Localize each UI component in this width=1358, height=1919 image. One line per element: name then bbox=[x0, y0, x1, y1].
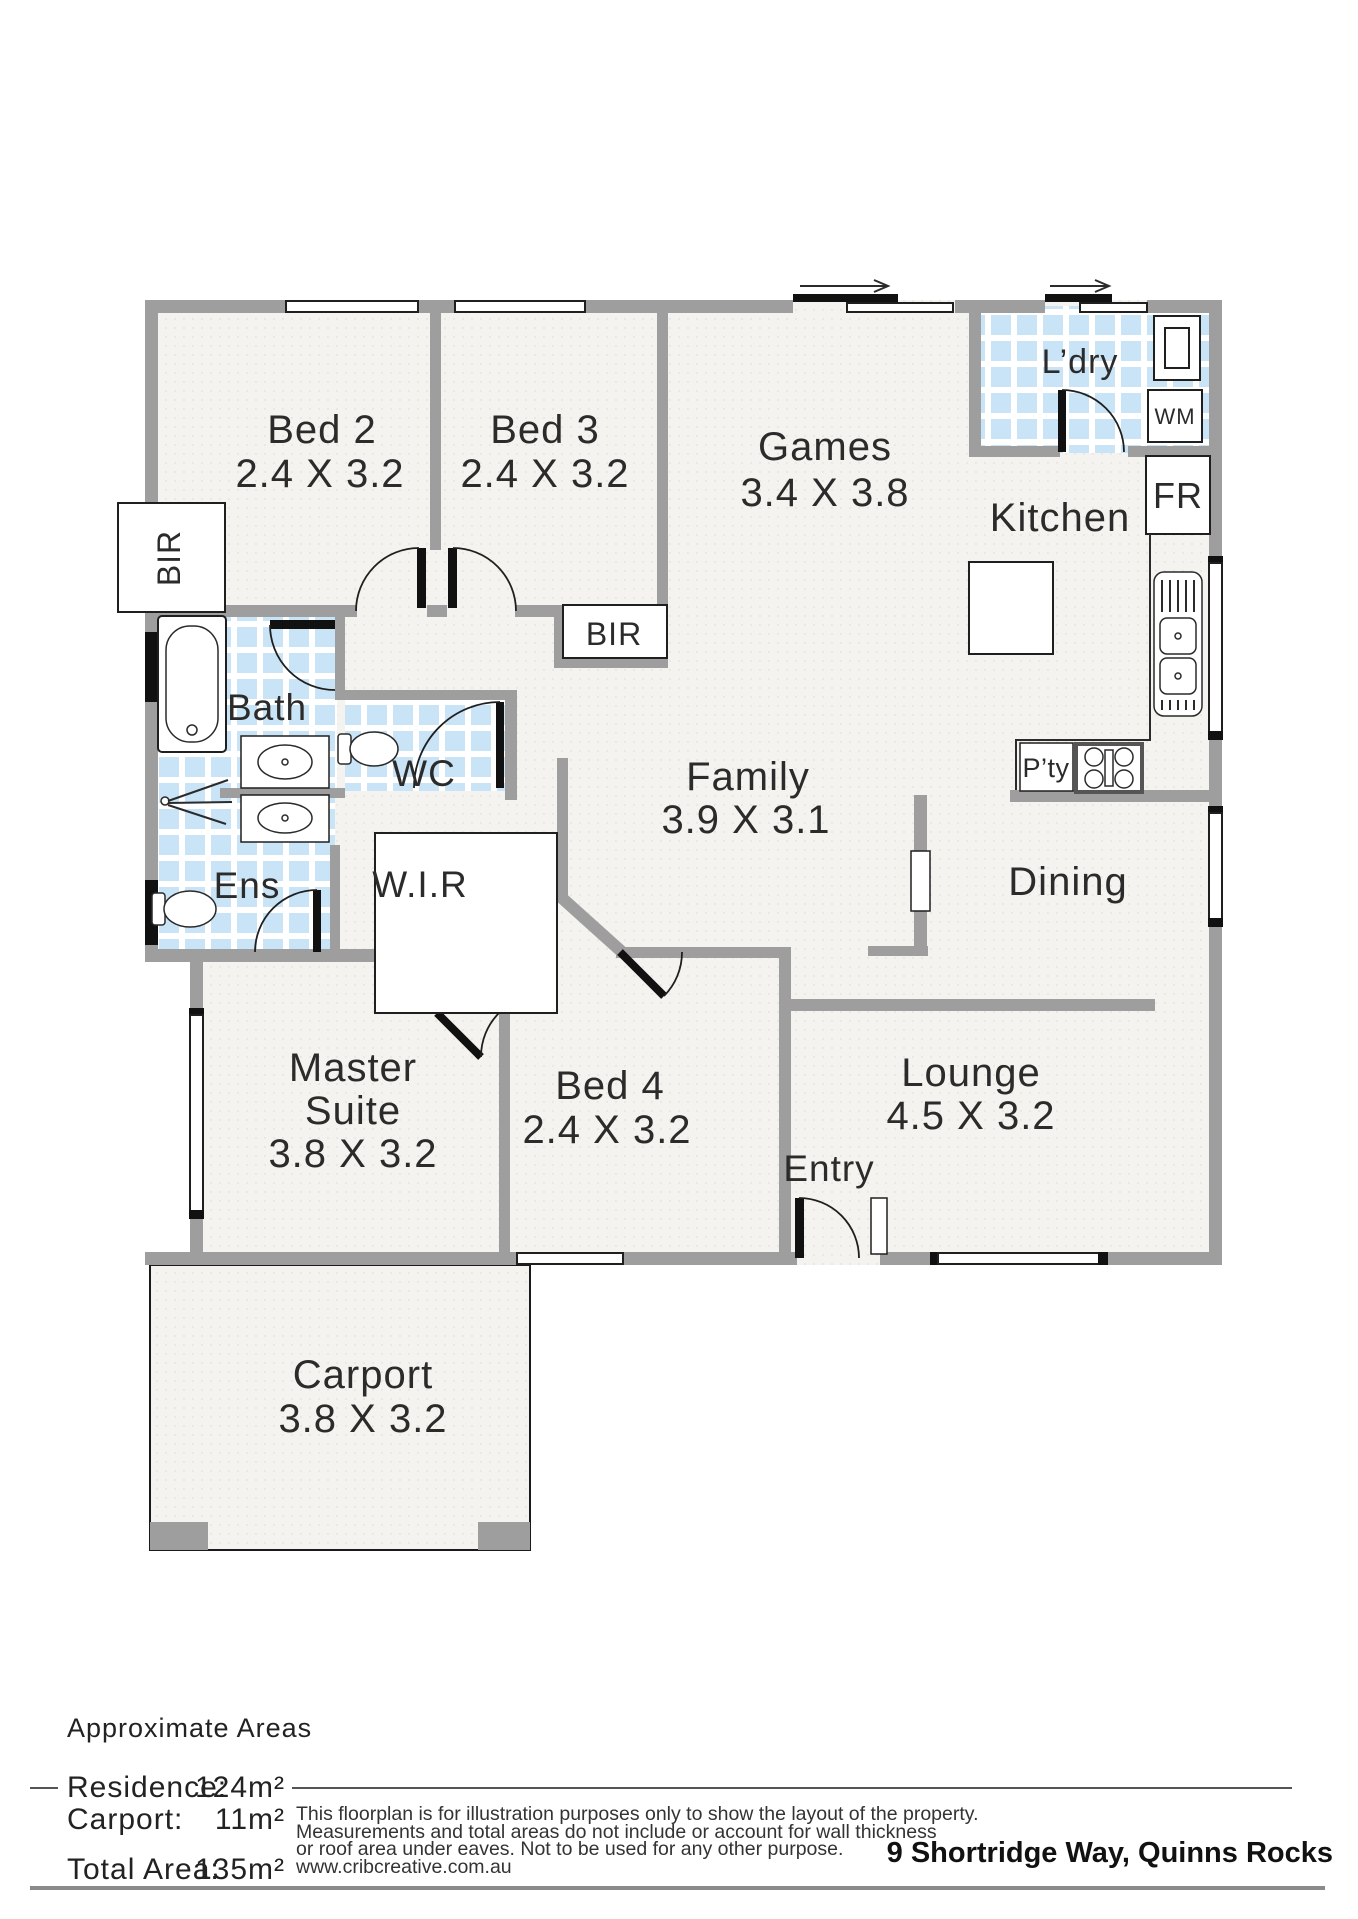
bath-window bbox=[145, 632, 158, 702]
master-label2: Suite bbox=[305, 1089, 401, 1133]
carport-label: Carport bbox=[293, 1353, 433, 1397]
carport-pillar-left bbox=[150, 1522, 208, 1550]
total-area-value: 135m² bbox=[195, 1853, 285, 1886]
footer: Approximate Areas Residence: 124m² Carpo… bbox=[30, 1713, 1333, 1890]
wm-label: WM bbox=[1154, 404, 1195, 429]
bed2-dims: 2.4 X 3.2 bbox=[235, 452, 404, 496]
bed2-window bbox=[286, 301, 418, 312]
kitchen-island bbox=[969, 562, 1053, 654]
entry-sidelight bbox=[871, 1198, 887, 1254]
bath-label: Bath bbox=[227, 687, 307, 728]
wc-label: WC bbox=[392, 753, 456, 794]
dining-label: Dining bbox=[1008, 860, 1127, 904]
family-label: Family bbox=[686, 755, 810, 799]
carport-area-label: Carport: bbox=[67, 1803, 183, 1836]
master-window bbox=[190, 1015, 203, 1212]
bed4-window bbox=[517, 1253, 623, 1264]
carport-area-value: 11m² bbox=[215, 1803, 285, 1836]
entry-label: Entry bbox=[783, 1148, 874, 1189]
master-dims: 3.8 X 3.2 bbox=[268, 1132, 437, 1176]
games-dims: 3.4 X 3.8 bbox=[740, 471, 909, 515]
areas-heading: Approximate Areas bbox=[67, 1713, 312, 1743]
wc-toilet-icon bbox=[338, 732, 398, 766]
bed4-label: Bed 4 bbox=[555, 1064, 665, 1108]
wir-label: W.I.R bbox=[372, 864, 467, 905]
ens-label: Ens bbox=[214, 865, 281, 906]
property-address: 9 Shortridge Way, Quinns Rocks bbox=[887, 1837, 1333, 1869]
bed2-bir-label: BIR bbox=[151, 530, 187, 586]
kitchen-label: Kitchen bbox=[990, 496, 1130, 540]
bathtub bbox=[158, 616, 226, 752]
family-dims: 3.9 X 3.1 bbox=[661, 798, 830, 842]
floorplan-page: Bed 2 2.4 X 3.2 Bed 3 2.4 X 3.2 Games 3.… bbox=[0, 0, 1358, 1919]
bed4-dims: 2.4 X 3.2 bbox=[522, 1108, 691, 1152]
floorplan-svg: Bed 2 2.4 X 3.2 Bed 3 2.4 X 3.2 Games 3.… bbox=[0, 0, 1358, 1919]
master-label1: Master bbox=[289, 1046, 417, 1090]
lounge-dims: 4.5 X 3.2 bbox=[886, 1094, 1055, 1138]
bed3-dims: 2.4 X 3.2 bbox=[460, 452, 629, 496]
bed3-window bbox=[455, 301, 585, 312]
laundry-trough-icon bbox=[1154, 316, 1200, 380]
lounge-label: Lounge bbox=[901, 1051, 1040, 1095]
kitchen-sink-icon bbox=[1154, 572, 1202, 716]
stove-icon bbox=[1076, 744, 1142, 792]
wir-box bbox=[375, 833, 557, 1013]
wall-niche bbox=[911, 851, 930, 911]
carport-pillar-right bbox=[478, 1522, 530, 1550]
ens-vanity bbox=[241, 795, 329, 842]
kitchen-window bbox=[1209, 563, 1222, 733]
carport-dims: 3.8 X 3.2 bbox=[278, 1397, 447, 1441]
ens-toilet-icon bbox=[152, 891, 216, 927]
bed2-label: Bed 2 bbox=[267, 408, 377, 452]
hall-bir-label: BIR bbox=[586, 616, 642, 652]
pantry-label: P’ty bbox=[1022, 753, 1069, 783]
laundry-label: L’dry bbox=[1042, 343, 1119, 381]
games-label: Games bbox=[758, 425, 892, 469]
dining-window bbox=[1209, 813, 1222, 920]
disclaimer-website: www.cribcreative.com.au bbox=[295, 1856, 512, 1878]
bath-vanity bbox=[241, 736, 329, 788]
fr-label: FR bbox=[1153, 475, 1203, 516]
residence-value: 124m² bbox=[195, 1771, 285, 1804]
bed3-label: Bed 3 bbox=[490, 408, 600, 452]
footer-rule bbox=[30, 1886, 1325, 1890]
lounge-window bbox=[938, 1253, 1100, 1264]
